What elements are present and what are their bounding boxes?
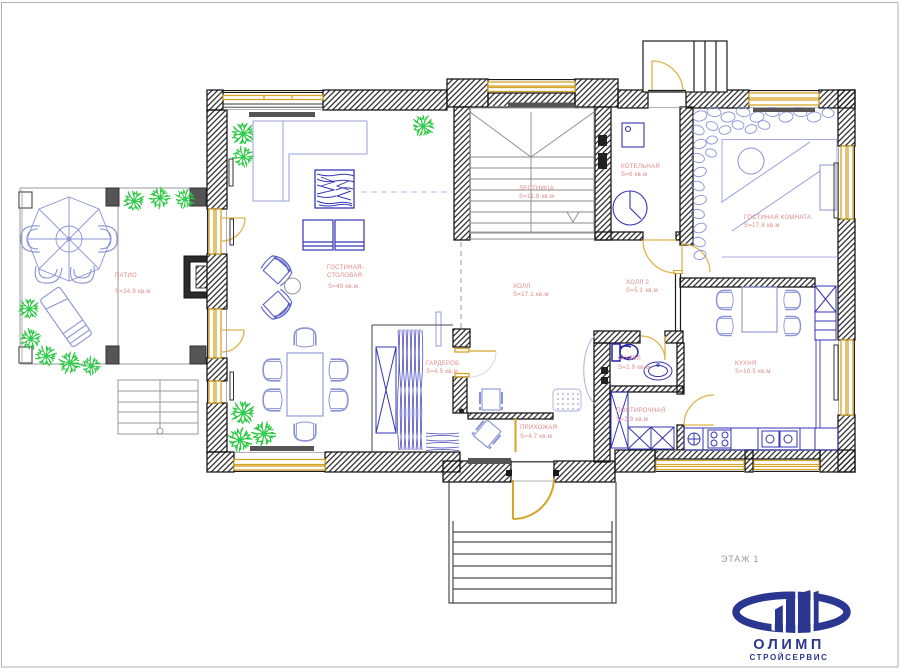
svg-text:S=11.8 кв.м: S=11.8 кв.м xyxy=(519,194,554,200)
svg-text:ХОЛЛ 2: ХОЛЛ 2 xyxy=(626,280,649,286)
svg-text:СТРОЙСЕРВИС: СТРОЙСЕРВИС xyxy=(749,653,828,662)
svg-text:S=24.9 кв.м: S=24.9 кв.м xyxy=(115,289,151,295)
svg-text:ГОСТИНАЯ-: ГОСТИНАЯ- xyxy=(327,265,364,271)
svg-text:ГОСТИНАЯ КОМНАТА: ГОСТИНАЯ КОМНАТА xyxy=(744,215,811,221)
svg-text:ХОЛЛ: ХОЛЛ xyxy=(513,284,530,290)
svg-text:S=2.9 кв.м: S=2.9 кв.м xyxy=(616,417,648,423)
svg-text:S=5.1 кв.м: S=5.1 кв.м xyxy=(626,288,658,294)
svg-text:ПОСТИРОЧНАЯ: ПОСТИРОЧНАЯ xyxy=(616,408,665,414)
svg-text:ЛЕСТНИЦА: ЛЕСТНИЦА xyxy=(519,186,554,192)
svg-text:ЭТАЖ 1: ЭТАЖ 1 xyxy=(721,554,759,564)
svg-text:S=2.9 кв.м: S=2.9 кв.м xyxy=(618,365,650,371)
svg-text:S=17.8 кв.м: S=17.8 кв.м xyxy=(744,223,780,229)
svg-text:КОТЕЛЬНАЯ: КОТЕЛЬНАЯ xyxy=(621,164,660,170)
svg-text:S=4.5 кв.м: S=4.5 кв.м xyxy=(426,369,458,375)
svg-text:S=49 кв.м: S=49 кв.м xyxy=(328,284,358,290)
svg-text:S=17.1 кв.м: S=17.1 кв.м xyxy=(513,292,549,298)
svg-text:ПРИХОЖАЯ: ПРИХОЖАЯ xyxy=(520,425,557,431)
svg-text:S=4.7 кв.м: S=4.7 кв.м xyxy=(520,434,552,440)
svg-text:ГАРДЕРОБ: ГАРДЕРОБ xyxy=(426,361,459,367)
svg-text:СТОЛОВАЯ: СТОЛОВАЯ xyxy=(327,273,362,279)
svg-text:С/УЗЕЛ: С/УЗЕЛ xyxy=(618,356,641,362)
svg-text:ПАТИО: ПАТИО xyxy=(115,273,137,279)
svg-text:S=6 кв.м: S=6 кв.м xyxy=(621,172,648,178)
svg-text:ОЛИМП: ОЛИМП xyxy=(753,637,825,653)
svg-text:S=10.5 кв.м: S=10.5 кв.м xyxy=(735,369,771,375)
svg-text:КУХНЯ: КУХНЯ xyxy=(735,361,757,367)
